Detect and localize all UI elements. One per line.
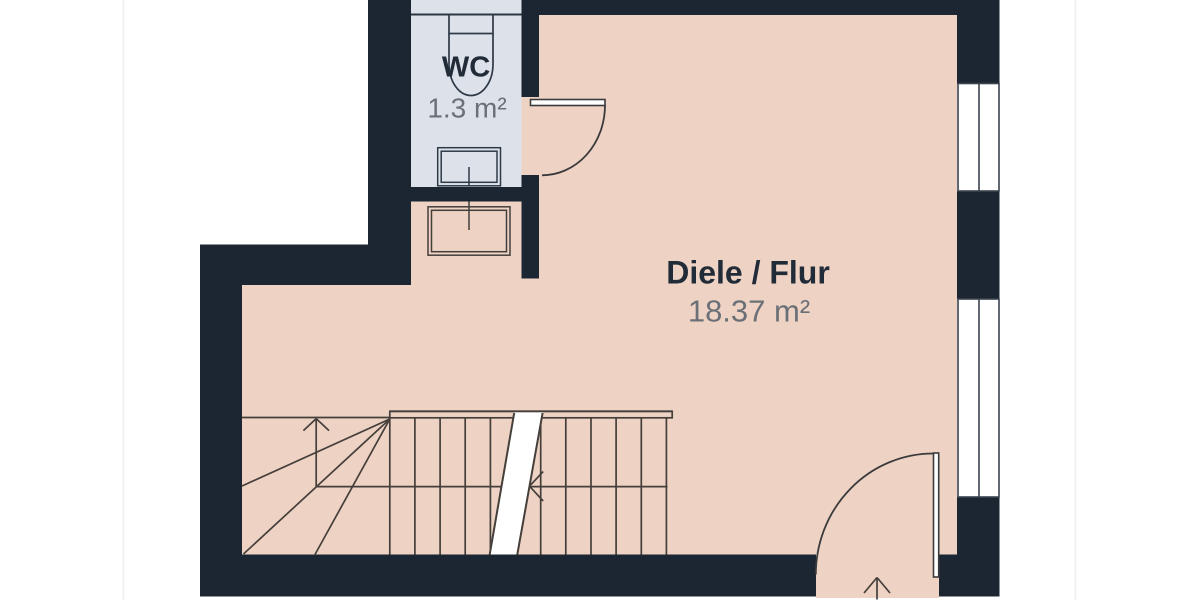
svg-text:1.3 m²: 1.3 m² [427, 93, 506, 124]
svg-text:WC: WC [442, 52, 490, 84]
svg-text:18.37 m²: 18.37 m² [688, 294, 810, 329]
svg-text:Diele / Flur: Diele / Flur [666, 255, 830, 291]
